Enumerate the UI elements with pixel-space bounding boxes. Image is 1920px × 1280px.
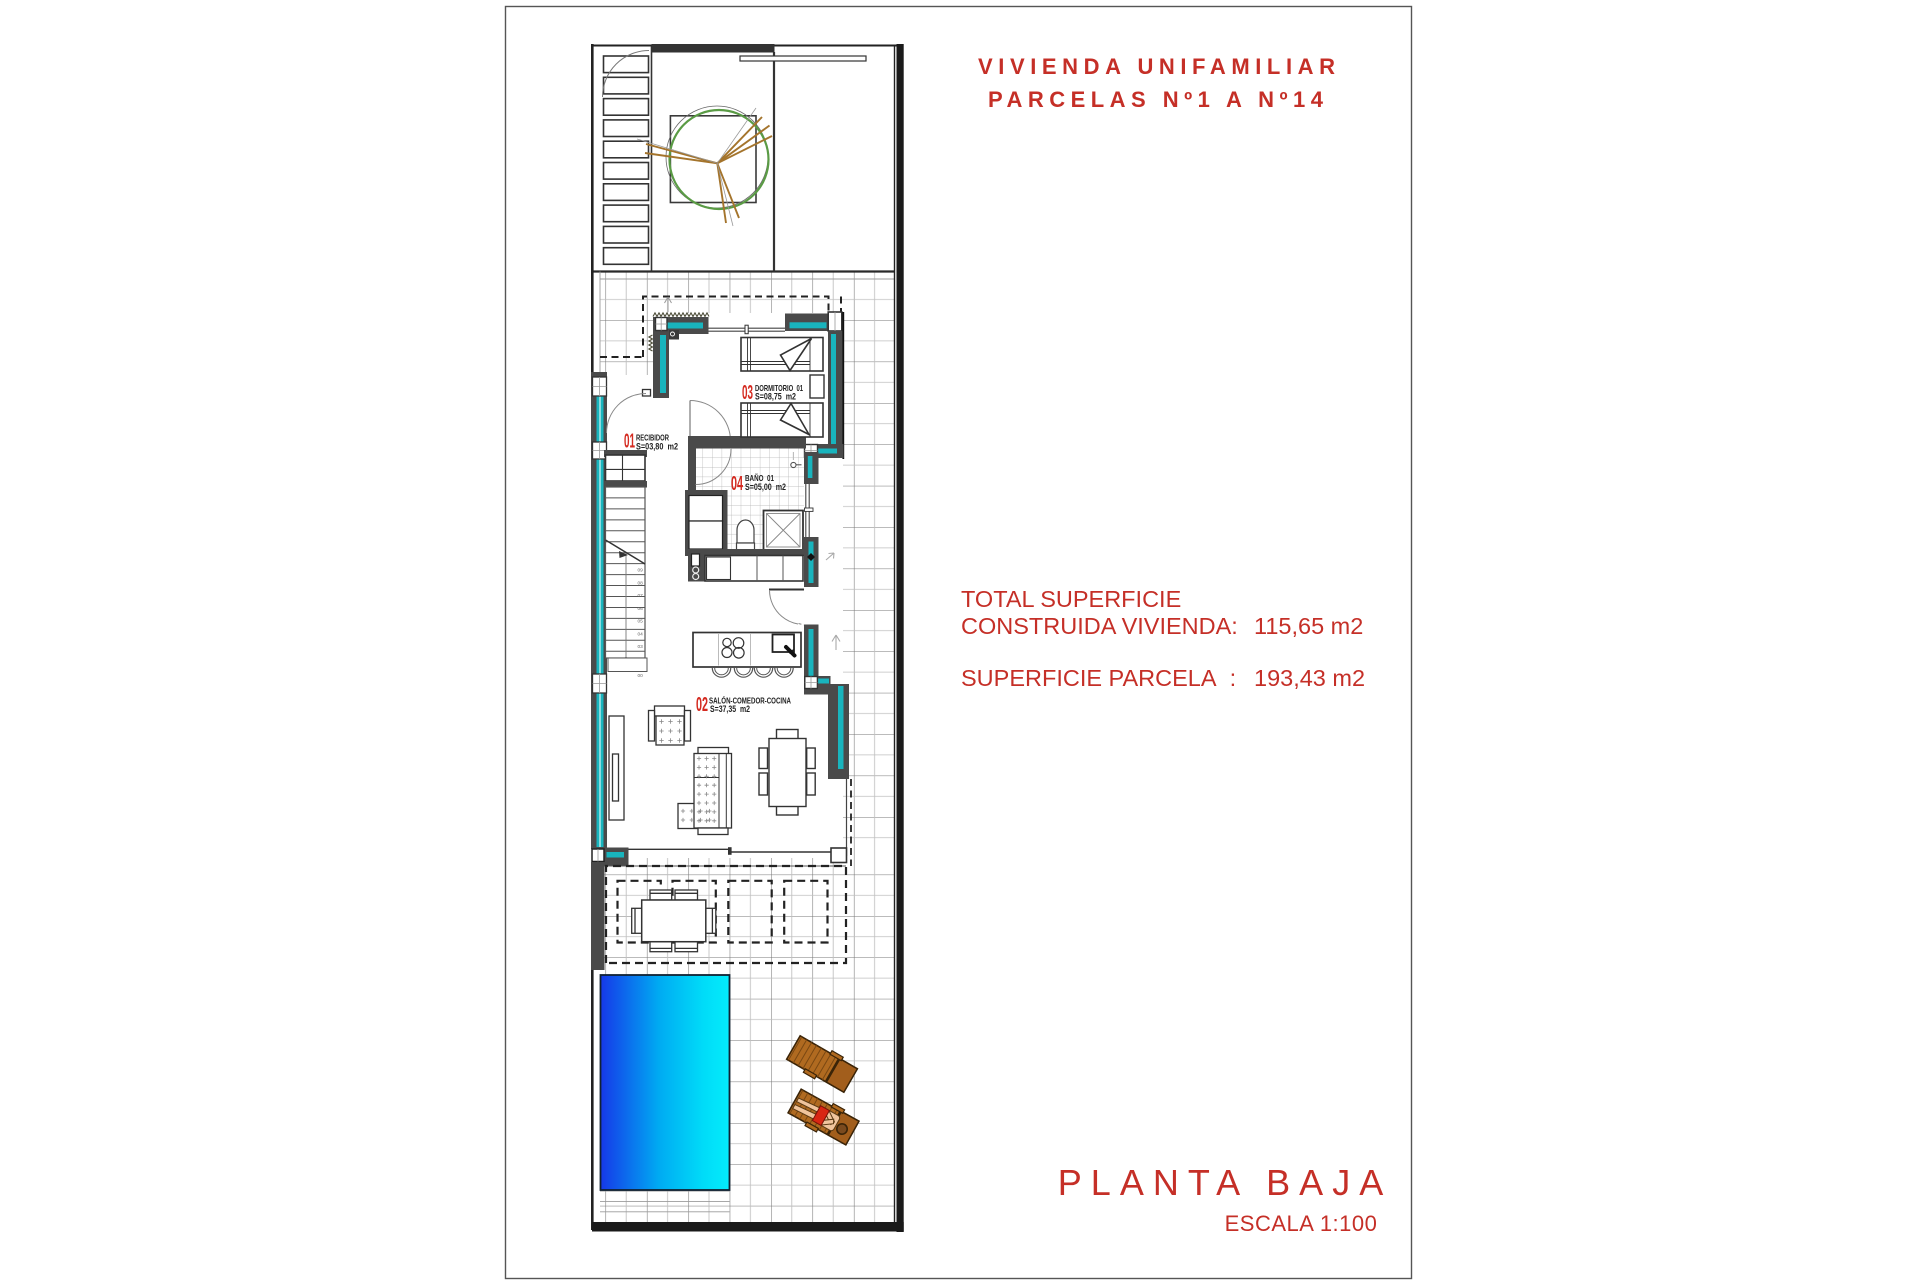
svg-text:193,43 m2: 193,43 m2 <box>1254 665 1365 691</box>
svg-text:09: 09 <box>638 568 644 574</box>
svg-text:05: 05 <box>638 619 644 625</box>
svg-text:03: 03 <box>638 644 644 650</box>
svg-text:CONSTRUIDA VIVIENDA:: CONSTRUIDA VIVIENDA: <box>961 613 1238 639</box>
svg-text:01: 01 <box>624 431 635 453</box>
svg-text:04: 04 <box>638 631 644 637</box>
svg-text:115,65 m2: 115,65 m2 <box>1254 613 1363 639</box>
svg-text:S=08,75 m2: S=08,75 m2 <box>755 392 796 402</box>
svg-text:PARCELAS Nº1 A Nº14: PARCELAS Nº1 A Nº14 <box>988 87 1328 112</box>
svg-text:S=05,00 m2: S=05,00 m2 <box>745 482 786 492</box>
svg-text:06: 06 <box>638 606 644 612</box>
svg-text:S=37,35 m2: S=37,35 m2 <box>710 704 750 714</box>
svg-text:08: 08 <box>638 580 644 586</box>
svg-text:00: 00 <box>638 673 644 679</box>
svg-text:S=03,80 m2: S=03,80 m2 <box>636 442 678 452</box>
svg-text:SUPERFICIE PARCELA :: SUPERFICIE PARCELA : <box>961 665 1236 691</box>
svg-text:ESCALA 1:100: ESCALA 1:100 <box>1225 1211 1378 1236</box>
svg-text:PLANTA BAJA: PLANTA BAJA <box>1058 1162 1392 1203</box>
svg-text:02: 02 <box>696 694 708 716</box>
svg-text:TOTAL SUPERFICIE: TOTAL SUPERFICIE <box>961 586 1181 612</box>
svg-text:VIVIENDA UNIFAMILIAR: VIVIENDA UNIFAMILIAR <box>978 54 1340 79</box>
svg-text:07: 07 <box>638 593 644 599</box>
svg-text:03: 03 <box>742 382 753 404</box>
svg-text:04: 04 <box>731 473 743 495</box>
